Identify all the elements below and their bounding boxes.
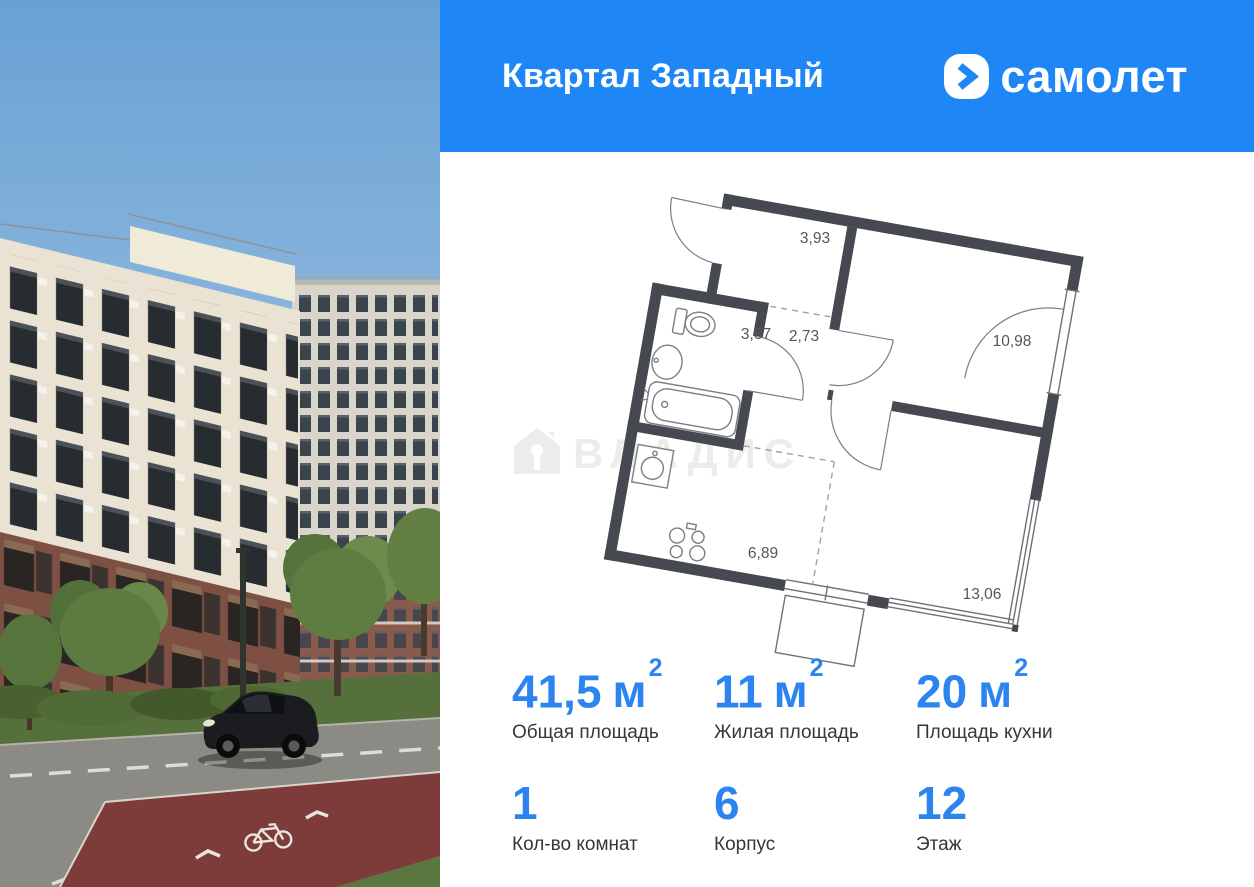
brand-logo: самолет (944, 54, 1188, 99)
stat-floor-label: Этаж (916, 834, 1118, 856)
room-labels: 3,93 3,87 2,73 10,98 6,89 13,06 (741, 230, 1031, 603)
room-label-corridor: 2,73 (789, 328, 819, 345)
stats-row-areas: 41,5м2 Общая площадь 11м2 Жилая площадь … (512, 658, 1118, 744)
building-photo (0, 0, 440, 887)
stat-rooms: 1 Кол-во комнат (512, 778, 714, 856)
stat-building-value: 6 (714, 778, 916, 828)
stat-building: 6 Корпус (714, 778, 916, 856)
info-panel: Квартал Западный самолет ВЛАДИС (440, 0, 1254, 887)
house-icon (510, 424, 564, 483)
room-label-living: 13,06 (963, 586, 1002, 603)
stat-floor: 12 Этаж (916, 778, 1118, 856)
brand-name: самолет (1000, 54, 1188, 99)
room-label-bedroom: 10,98 (993, 333, 1032, 350)
stat-kitchen-area: 20м2 Площадь кухни (916, 658, 1118, 744)
stat-kitchen-area-label: Площадь кухни (916, 722, 1118, 744)
stat-kitchen-area-value: 20м2 (916, 658, 1118, 716)
header-bar: Квартал Западный самолет (440, 0, 1254, 152)
stat-total-area-value: 41,5м2 (512, 658, 714, 716)
room-label-kitchen: 6,89 (748, 545, 778, 562)
stat-total-area: 41,5м2 Общая площадь (512, 658, 714, 744)
room-label-bathroom: 3,87 (741, 326, 771, 343)
project-title: Квартал Западный (502, 57, 824, 96)
stats-row-details: 1 Кол-во комнат 6 Корпус 12 Этаж (512, 778, 1118, 856)
room-label-hallway: 3,93 (800, 230, 830, 247)
stat-rooms-label: Кол-во комнат (512, 834, 714, 856)
stat-living-area-value: 11м2 (714, 658, 916, 716)
stat-living-area: 11м2 Жилая площадь (714, 658, 916, 744)
samolet-chevron-icon (944, 54, 989, 99)
listing-card: Квартал Западный самолет ВЛАДИС (0, 0, 1254, 887)
floor-plan: 3,93 3,87 2,73 10,98 6,89 13,06 (600, 180, 1120, 680)
stat-total-area-label: Общая площадь (512, 722, 714, 744)
stat-rooms-value: 1 (512, 778, 714, 828)
apartment-stats: 41,5м2 Общая площадь 11м2 Жилая площадь … (512, 658, 1118, 856)
stat-building-label: Корпус (714, 834, 916, 856)
stat-floor-value: 12 (916, 778, 1118, 828)
stat-living-area-label: Жилая площадь (714, 722, 916, 744)
plan-windows (784, 250, 1080, 634)
